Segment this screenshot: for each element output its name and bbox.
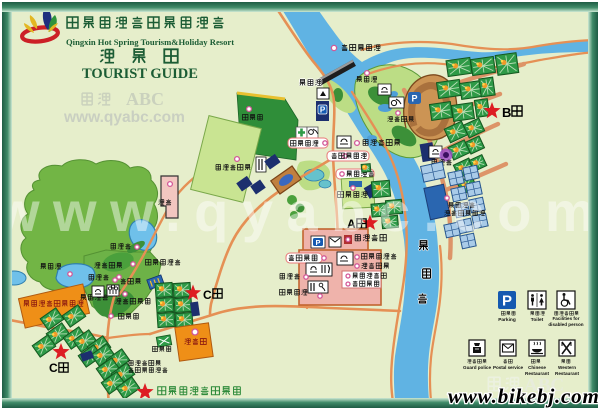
svg-text:Western: Western [558,365,576,370]
svg-text:Postal service: Postal service [493,365,523,370]
svg-text:Qingxin Hot Spring Tourism&Hol: Qingxin Hot Spring Tourism&Holiday Resor… [66,37,234,47]
svg-text:ABC: ABC [126,89,164,109]
svg-text:disabled person: disabled person [548,322,583,327]
svg-text:B: B [502,105,511,120]
svg-text:www.qyabc.com: www.qyabc.com [63,109,185,126]
svg-text:www.qyabc.com: www.qyabc.com [0,180,600,243]
svg-text:P: P [320,106,326,115]
svg-text:P: P [502,293,512,310]
svg-text:www.bikebj.com: www.bikebj.com [448,384,600,408]
svg-text:Chinese: Chinese [528,365,546,370]
svg-text:Facilities for: Facilities for [552,316,579,321]
svg-text:P: P [411,94,417,104]
svg-text:C: C [49,361,58,375]
svg-text:Guard police: Guard police [463,365,491,370]
svg-text:Parking: Parking [498,317,516,323]
svg-text:C: C [203,288,212,302]
svg-text:TOURIST GUIDE: TOURIST GUIDE [82,66,198,82]
svg-text:Toilet: Toilet [531,317,544,323]
